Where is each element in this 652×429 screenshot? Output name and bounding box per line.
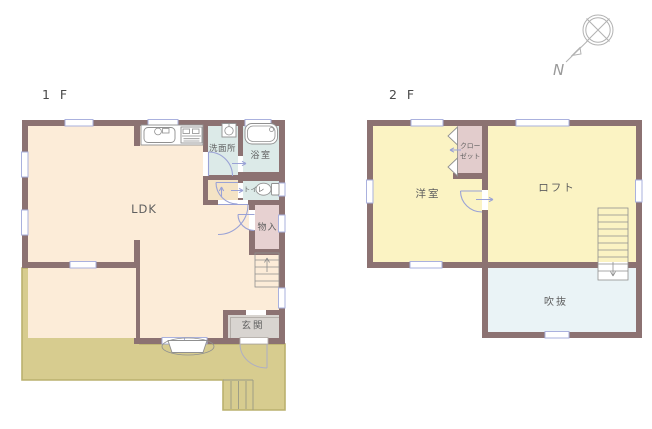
kitchen-counter [141,125,203,145]
north-arrow [566,41,588,63]
bedroom-label: 洋室 [416,187,441,200]
kitchen-sink-icon [144,128,175,143]
floor-2-plan: 2 F 洋室 ロフト クロー ゼット 吹抜 [367,87,643,338]
room-2f-base [373,126,636,262]
compass-cross-lines [587,19,610,42]
toilet-label: トイレ [244,186,265,194]
front-door-opening [240,338,268,345]
bath-label: 浴室 [250,149,271,161]
closet-label-line2: ゼット [460,152,480,161]
floor-plan-drawing: 1 F LDK 洗面所 浴室 トイレ 物入 玄関 [0,0,652,429]
void-label: 吹抜 [544,295,568,308]
loft-label: ロフト [538,182,576,194]
washroom-label: 洗面所 [209,143,236,154]
storage-label: 物入 [257,221,277,233]
stove-icon [181,127,202,143]
bathtub-icon [245,124,278,145]
compass: N [553,15,613,79]
entrance-label: 玄関 [241,320,264,332]
floor-plan-canvas: 1 F LDK 洗面所 浴室 トイレ 物入 玄関 [0,0,652,429]
north-label: N [553,61,564,79]
ldk-label: LDK [131,202,157,216]
floor1-label: 1 F [42,87,70,102]
floor2-label: 2 F [389,87,417,102]
closet-label-line1: クロー [460,142,481,150]
floor-1-plan: 1 F LDK 洗面所 浴室 トイレ 物入 玄関 [22,87,286,410]
washbasin-icon [222,124,236,138]
